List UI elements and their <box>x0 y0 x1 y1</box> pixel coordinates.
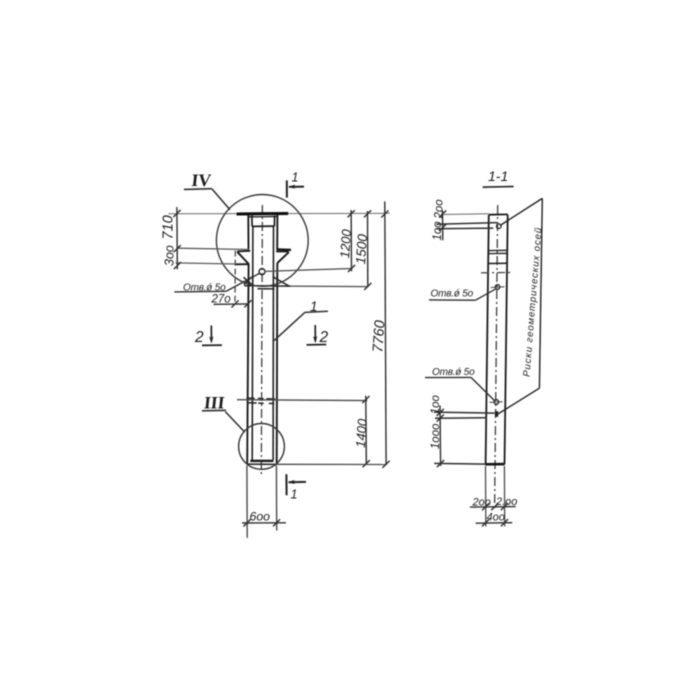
svg-text:710: 710 <box>161 215 177 239</box>
svg-text:2oo: 2oo <box>433 199 445 220</box>
svg-text:4oo: 4oo <box>487 512 505 524</box>
svg-text:III: III <box>203 393 226 413</box>
svg-text:2: 2 <box>319 329 329 346</box>
svg-text:1500: 1500 <box>353 233 370 264</box>
svg-text:6oo: 6oo <box>250 510 271 524</box>
svg-text:1oo: 1oo <box>432 221 444 241</box>
svg-text:1: 1 <box>291 488 298 502</box>
svg-text:1oo: 1oo <box>430 395 442 415</box>
svg-text:Отв.ǿ 5o: Отв.ǿ 5o <box>432 367 475 378</box>
svg-text:1-1: 1-1 <box>488 168 508 184</box>
svg-text:7760: 7760 <box>370 320 388 353</box>
svg-text:2oo: 2oo <box>472 497 491 509</box>
svg-text:1400: 1400 <box>353 418 370 449</box>
svg-text:1: 1 <box>292 171 299 185</box>
svg-text:2: 2 <box>194 329 204 346</box>
svg-text:2.oo: 2.oo <box>495 496 517 508</box>
svg-text:Отв.ǿ 5o: Отв.ǿ 5o <box>431 288 474 299</box>
svg-text:IV: IV <box>191 170 213 190</box>
svg-text:1200: 1200 <box>337 228 354 259</box>
svg-text:1ooo: 1ooo <box>430 423 442 449</box>
svg-text:3oo: 3oo <box>163 245 177 266</box>
